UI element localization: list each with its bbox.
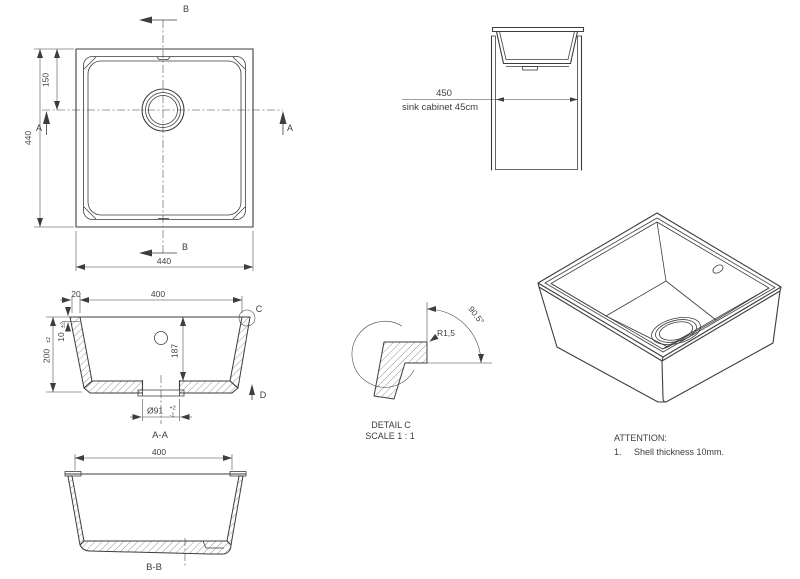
bb-right-wall	[227, 476, 243, 545]
technical-drawing-sheet: B B A A 440 150	[0, 0, 800, 579]
detail-c-label: C	[256, 304, 263, 314]
dim-450: 450 sink cabinet 45cm	[402, 88, 578, 113]
detail-c-scale: SCALE 1 : 1	[365, 431, 415, 441]
section-label-a-right: A	[287, 123, 293, 133]
section-marker-a-left: A	[36, 111, 50, 135]
dim-10-tol: ±2	[61, 322, 67, 328]
section-marker-a-right: A	[280, 111, 294, 135]
sink-bowl-outer	[497, 32, 578, 64]
dim-aa-400: 20 400	[60, 289, 242, 313]
section-marker-b-top: B	[139, 4, 189, 24]
attention-note: ATTENTION: 1. Shell thickness 10mm.	[614, 433, 724, 457]
attention-item-text: Shell thickness 10mm.	[634, 447, 724, 457]
dim-440-left-text: 440	[23, 131, 33, 145]
attention-heading: ATTENTION:	[614, 433, 667, 443]
dim-400-text: 400	[151, 289, 165, 299]
section-aa-title: A-A	[152, 430, 169, 441]
cabinet-caption: sink cabinet 45cm	[402, 102, 478, 113]
dim-200-text: 200	[42, 349, 52, 363]
countertop	[493, 28, 584, 32]
dim-20-text: 20	[71, 289, 81, 299]
angle-text: 90.5°	[466, 304, 486, 326]
marker-d-label: D	[260, 390, 267, 400]
section-bb: 400 B-B	[65, 447, 246, 573]
attention-item-no: 1.	[614, 447, 622, 457]
dim-o91-text: Ø91	[147, 406, 163, 416]
dim-440-bottom: 440	[76, 231, 253, 271]
aa-left-wall	[70, 317, 92, 388]
section-label-b-bottom: B	[182, 242, 188, 252]
dim-o91-tol-dn: -1	[170, 413, 175, 419]
dim-187-text: 187	[170, 344, 180, 358]
aa-right-wall	[230, 317, 250, 388]
marker-d: D	[249, 384, 267, 400]
dim-150: 150	[41, 49, 58, 110]
sink-bowl-inner	[500, 32, 575, 60]
section-marker-b-bottom: B	[139, 242, 188, 257]
detail-c-view: 90.5° R1,5 DETAIL C SCALE 1 : 1	[352, 302, 492, 441]
section-bb-title: B-B	[146, 562, 162, 573]
dim-bb-400: 400	[75, 447, 232, 470]
overflow-hole-section	[155, 332, 168, 345]
bb-bottom	[80, 541, 231, 554]
iso-overflow-hole	[711, 263, 724, 275]
dim-150-text: 150	[41, 73, 51, 87]
isometric-view	[538, 213, 781, 402]
drain-stub	[523, 67, 538, 71]
rim-notch-top	[157, 57, 170, 60]
detail-corner-section	[374, 342, 427, 399]
dim-200-tol: ±2	[46, 337, 52, 343]
dim-450-text: 450	[436, 88, 452, 99]
sink-drawing-svg: B B A A 440 150	[0, 0, 800, 579]
radius-text: R1,5	[437, 328, 455, 338]
section-aa: 20 400 10 ±2 200 ±2 187	[42, 289, 267, 441]
iso-drain	[649, 313, 704, 349]
dim-o91-tol-up: +2	[170, 406, 176, 412]
detail-c-title: DETAIL C	[371, 420, 411, 430]
cabinet-view: 450 sink cabinet 45cm	[402, 28, 584, 171]
dim-10-text: 10	[56, 332, 66, 342]
section-label-a-left: A	[36, 123, 42, 133]
section-label-b-top: B	[183, 4, 189, 14]
dim-440-bottom-text: 440	[157, 256, 171, 266]
dim-bb-400-text: 400	[152, 447, 166, 457]
top-view: B B A A 440 150	[23, 4, 293, 271]
bb-left-wall	[68, 476, 84, 545]
dim-aa-187: 187	[170, 317, 184, 381]
